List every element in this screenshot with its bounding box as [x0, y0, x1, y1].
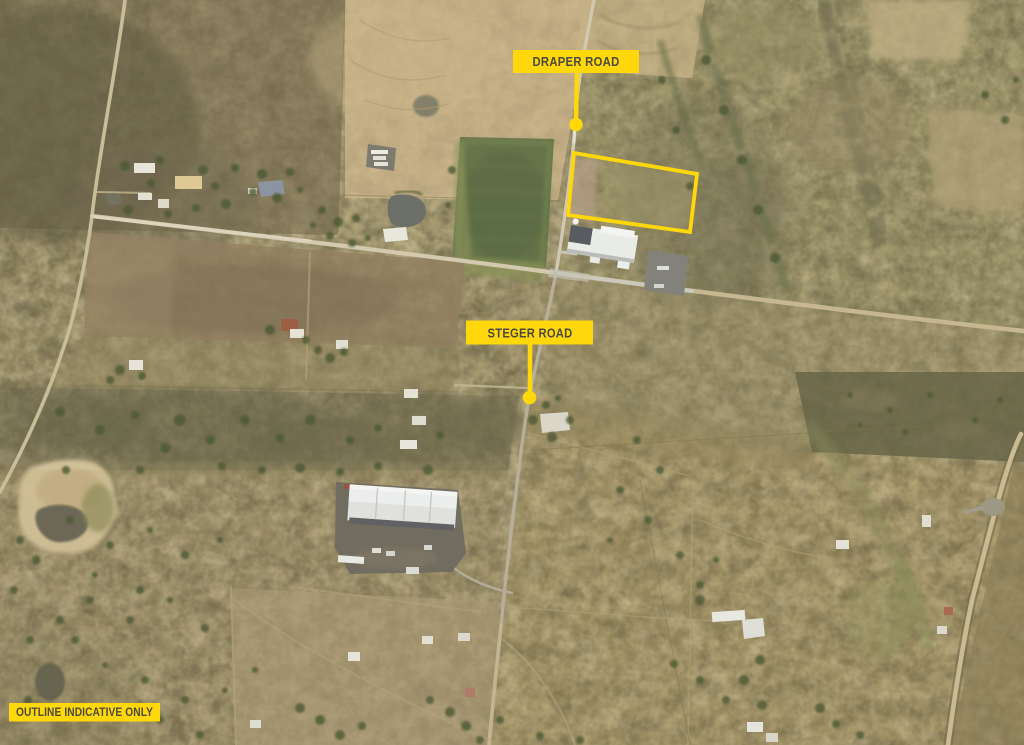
svg-text:OUTLINE INDICATIVE ONLY: OUTLINE INDICATIVE ONLY	[16, 706, 153, 719]
svg-text:DRAPER ROAD: DRAPER ROAD	[533, 55, 620, 69]
svg-text:STEGER ROAD: STEGER ROAD	[488, 327, 573, 341]
